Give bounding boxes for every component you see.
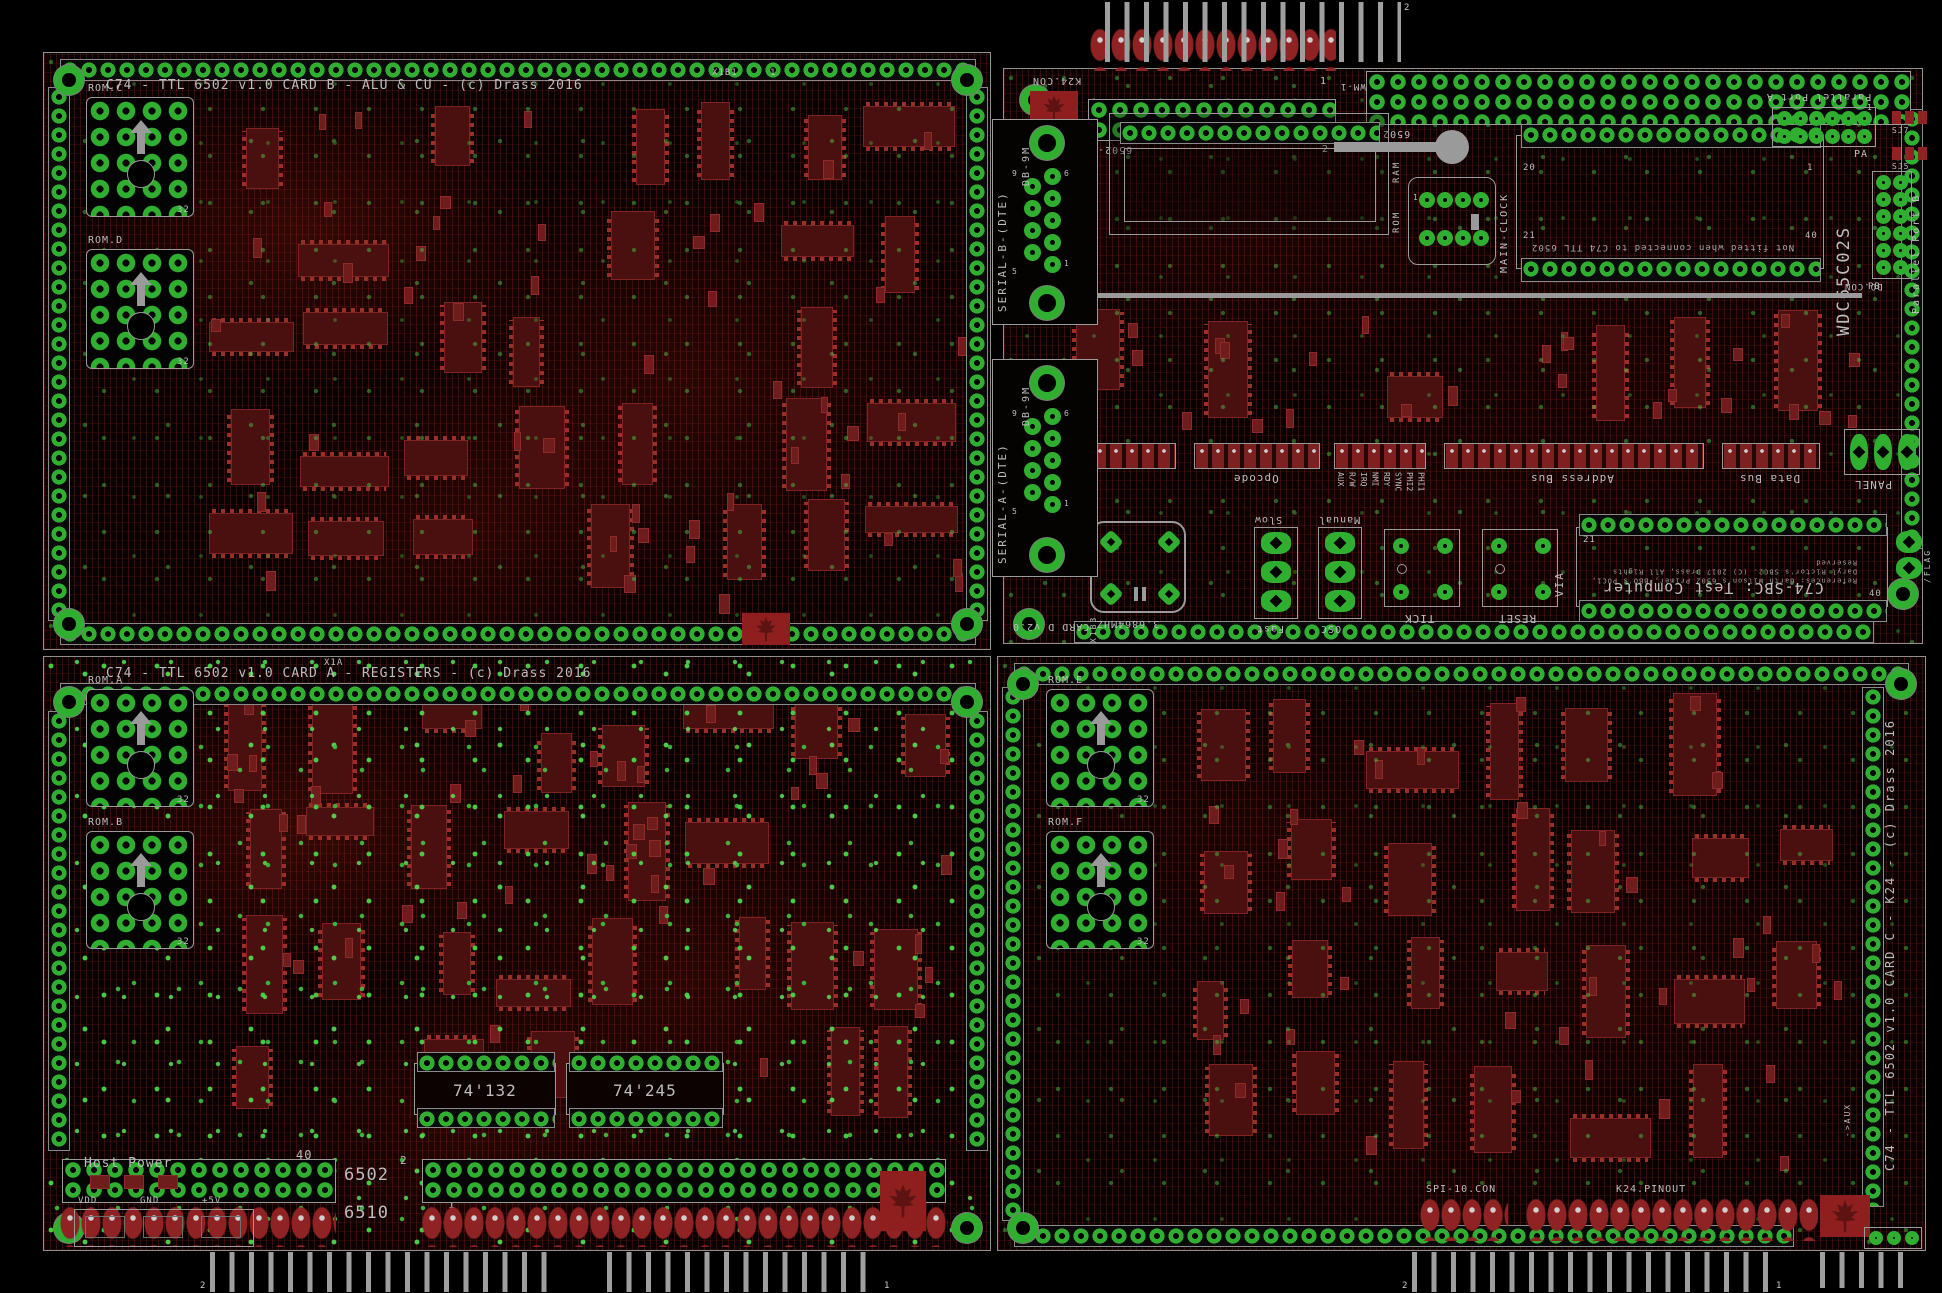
board-card-c: ROM.E32ROM.F32->AUXSPI-10.CONK24.PINOUTC… <box>997 656 1926 1251</box>
ic-chip <box>1674 317 1705 408</box>
button-pad <box>1393 584 1409 600</box>
resistor <box>1563 337 1574 350</box>
resistor <box>1542 345 1550 363</box>
silk-label-vertical: VIA <box>1554 537 1565 597</box>
header-pad <box>1793 111 1808 126</box>
silk-label: 1 <box>770 69 776 78</box>
socket-pin-row <box>1579 600 1887 622</box>
resistor <box>1848 415 1857 428</box>
dip-socket <box>1109 113 1389 235</box>
ic-chip <box>411 805 448 889</box>
power-pin-label: +5V <box>202 1197 221 1206</box>
ic-chip <box>701 102 731 180</box>
socket-pad <box>1473 230 1489 246</box>
ic-chip <box>308 521 385 556</box>
jumper-pad <box>1918 111 1927 124</box>
host-power-label: Host Power <box>84 1157 172 1170</box>
ic-chip <box>504 811 569 849</box>
header-pad <box>1893 243 1908 258</box>
resistor <box>823 160 835 179</box>
jumper-pad <box>1261 532 1291 554</box>
ic-chip <box>1490 703 1519 799</box>
signal-label: AUX <box>1336 472 1344 486</box>
resistor <box>1517 802 1528 820</box>
jumper-wire-end <box>1435 130 1469 164</box>
pcb-layout-screenshot: ROM.C32ROM.D32X1B11C74 - TTL 6502 v1.0 C… <box>0 0 1942 1293</box>
header-pad <box>1893 226 1908 241</box>
ic-chip <box>1586 945 1627 1038</box>
edge-pin-strip-right <box>1862 687 1884 1207</box>
ic-chip <box>874 929 917 1009</box>
socket-pad <box>1455 230 1471 246</box>
resistor <box>319 114 327 130</box>
flag-pad <box>1896 531 1922 553</box>
resistor <box>1766 1065 1775 1084</box>
mounting-hole <box>1886 669 1916 699</box>
via-socket: References: Garth Wilson's 6502 Primer, … <box>1576 527 1888 607</box>
board-card-d: K24.CON6502-B12WM-16502-ARAMROM1MAIN-CLO… <box>1003 68 1923 644</box>
ic-chip <box>541 733 572 793</box>
resistor <box>1276 892 1285 911</box>
button-pad <box>1437 538 1453 554</box>
db9-type-label: DB-9M <box>1022 126 1032 186</box>
header-2x6: 1 <box>1772 107 1876 147</box>
gray-bus-trace <box>1062 293 1862 298</box>
ic-chip <box>685 822 769 864</box>
resistor <box>1747 978 1755 992</box>
header-pad <box>1841 129 1856 144</box>
header-pad <box>1876 226 1891 241</box>
resistor <box>1209 806 1219 825</box>
resistor <box>1511 1090 1522 1103</box>
resistor <box>249 755 258 772</box>
resistor <box>1505 1012 1516 1028</box>
ic-chip <box>519 406 565 489</box>
db9-pad <box>1044 212 1061 229</box>
db9-label: SERIAL-B-(DTE) <box>997 134 1008 312</box>
resistor <box>841 474 850 489</box>
resistor <box>1220 342 1230 360</box>
resistor <box>531 276 540 294</box>
resistor <box>293 960 304 974</box>
connector-pin-comb <box>210 1252 557 1292</box>
resistor <box>1448 386 1458 405</box>
ic-pin-row <box>417 1052 555 1072</box>
resistor <box>941 855 952 875</box>
silk-label: 2 <box>400 1155 408 1166</box>
capacitor <box>124 1175 144 1189</box>
socket-pad <box>1419 230 1435 246</box>
plcc-center-hole <box>127 893 155 921</box>
resistor <box>953 559 962 577</box>
board-card-b: ROM.C32ROM.D32X1B11C74 - TTL 6502 v1.0 C… <box>43 52 991 650</box>
via-title: C74-SBC: Test Computer <box>1603 580 1824 595</box>
db9-pad <box>1024 200 1041 217</box>
resistor <box>853 951 864 965</box>
ic-chip <box>1571 830 1616 913</box>
resistor <box>1286 409 1294 428</box>
ic-chip <box>1673 693 1716 796</box>
plcc-socket: 32 <box>86 97 194 217</box>
silk-label: PANEL <box>1854 479 1892 490</box>
pushbutton <box>1482 529 1558 607</box>
ic-chip <box>602 725 646 787</box>
orientation-arrow-icon <box>137 865 145 887</box>
resistor <box>1721 398 1732 413</box>
power-pin-label: VDD <box>78 1197 97 1206</box>
pin-number: 21 <box>1523 232 1536 241</box>
resistor <box>1849 353 1860 367</box>
mounting-hole <box>54 687 84 717</box>
resistor <box>416 246 426 261</box>
resistor <box>1215 338 1225 353</box>
resistor <box>309 434 319 450</box>
silk-label: SJ5 <box>1892 163 1909 171</box>
header-pad <box>1893 260 1908 275</box>
resistor <box>279 814 288 832</box>
ic-chip <box>795 699 838 759</box>
mounting-hole <box>1008 1213 1038 1243</box>
resistor <box>1362 316 1369 334</box>
db9-pad <box>1024 222 1041 239</box>
silk-label: 1 <box>1867 104 1873 112</box>
resistor <box>708 291 717 307</box>
ic-chip <box>591 504 630 587</box>
header-pad <box>1876 260 1891 275</box>
header-pad <box>1777 111 1792 126</box>
resistor <box>754 203 764 222</box>
silk-label-vertical: ROM <box>1393 193 1402 233</box>
connector-pin-comb <box>1105 2 1401 62</box>
crystal-symbol <box>1142 587 1146 601</box>
crystal-label: 3.6864MHZ <box>1096 618 1159 628</box>
led-array <box>1334 443 1426 469</box>
ic-pin-row <box>569 1052 723 1072</box>
resistor <box>513 775 522 793</box>
ic-part-number: 74'245 <box>613 1083 677 1099</box>
ic-chip <box>404 440 468 476</box>
socket-pad <box>1437 192 1453 208</box>
mounting-hole <box>54 65 84 95</box>
jumper-pad <box>1892 147 1901 160</box>
plcc-pin-count: 32 <box>1137 938 1150 947</box>
mounting-hole <box>952 687 982 717</box>
db9-mount-hole <box>1030 538 1064 572</box>
resistor <box>898 413 907 431</box>
button-pad <box>1535 584 1551 600</box>
jumper-3pin <box>1318 527 1362 619</box>
resistor <box>1733 348 1743 361</box>
button-pad <box>1437 584 1453 600</box>
resistor <box>1780 1156 1788 1171</box>
red-pad-row <box>1420 1197 1508 1241</box>
resistor <box>924 132 932 150</box>
plcc-center-hole <box>127 312 155 340</box>
ic-chip <box>444 302 482 373</box>
led-array-label: Data Bus <box>1739 473 1800 484</box>
crystal-pad <box>1156 529 1181 554</box>
plcc-center-hole <box>1087 751 1115 779</box>
ic-chip <box>727 504 762 580</box>
jumper-pad <box>1905 111 1914 124</box>
resistor <box>355 112 362 130</box>
resistor <box>1342 887 1351 902</box>
ic-chip <box>1291 819 1332 880</box>
crystal-pad <box>1098 581 1123 606</box>
resistor <box>453 303 464 321</box>
resistor <box>617 761 626 781</box>
dual-row-header <box>422 1159 946 1203</box>
resistor <box>490 1025 501 1043</box>
ic-chip <box>1366 751 1459 789</box>
ic-chip <box>306 807 374 836</box>
socket-pad <box>1437 230 1453 246</box>
resistor <box>1340 977 1349 990</box>
power-pin-label: GND <box>140 1197 159 1206</box>
ic-chip <box>1411 937 1440 1008</box>
silk-label: K24.PINOUT <box>1616 1185 1686 1195</box>
ic-chip <box>513 317 540 387</box>
orientation-arrow-icon <box>137 284 145 306</box>
socket-pad <box>1419 192 1435 208</box>
orientation-arrow-icon <box>137 132 145 154</box>
pin-number: 21 <box>1583 536 1596 545</box>
led-array <box>1722 443 1820 469</box>
orientation-arrow-icon <box>1097 865 1105 887</box>
resistor <box>1819 411 1831 425</box>
ic-chip <box>303 312 387 345</box>
resistor <box>633 824 645 839</box>
ic-chip <box>209 322 294 352</box>
button-pad <box>1393 538 1409 554</box>
resistor <box>404 287 414 304</box>
resistor <box>773 381 781 398</box>
ic-chip <box>905 714 946 776</box>
silk-label: WM-1 <box>1340 81 1366 90</box>
orientation-arrow-icon <box>1097 723 1105 745</box>
edge-pin-strip-right <box>966 711 988 1151</box>
resistor <box>1781 314 1790 328</box>
silk-label: SJ7 <box>1892 127 1909 135</box>
resistor <box>925 967 933 983</box>
resistor <box>1516 697 1526 712</box>
connector-pin-comb <box>1412 1252 1771 1292</box>
ic-chip <box>496 979 572 1007</box>
pushbutton <box>1384 529 1460 607</box>
plcc-socket-label: ROM.B <box>88 818 123 828</box>
resistor <box>1375 760 1382 779</box>
header-2x6-vertical <box>1872 171 1912 279</box>
header-pad <box>1777 129 1792 144</box>
resistor <box>1789 404 1799 420</box>
signal-label: RDY <box>1382 472 1390 486</box>
header-pad <box>1841 111 1856 126</box>
panel-connector <box>1844 429 1920 475</box>
resistor <box>686 546 695 563</box>
header-pad <box>1893 175 1908 190</box>
capacitor <box>158 1175 178 1189</box>
silk-label: Parallel Port A <box>1766 91 1871 101</box>
jumper-pad <box>1325 532 1355 554</box>
ic-chip <box>1388 843 1432 916</box>
resistor <box>1561 332 1568 352</box>
mounting-hole <box>1008 669 1038 699</box>
header-pad <box>1876 175 1891 190</box>
silk-label: CARD D v2.0 <box>1012 621 1089 631</box>
resistor <box>297 815 306 833</box>
signal-label: R/W <box>1348 472 1356 486</box>
header-pad <box>1825 129 1840 144</box>
ic-chip <box>1516 808 1550 911</box>
panel-pad <box>1898 434 1916 470</box>
resistor <box>450 784 461 803</box>
ic-chip <box>246 128 279 189</box>
socket-pin-row <box>1120 122 1380 144</box>
resistor <box>1128 323 1138 338</box>
resistor <box>345 938 354 958</box>
resistor <box>727 493 734 511</box>
silk-label: 1 <box>1064 260 1070 268</box>
ic-chip <box>1780 829 1834 861</box>
resistor <box>791 447 799 464</box>
resistor <box>876 287 885 303</box>
jumper-3pin <box>1254 527 1298 619</box>
resistor <box>590 751 597 768</box>
resistor <box>1224 865 1234 879</box>
resistor <box>1599 831 1606 846</box>
pin-number: 20 <box>1523 164 1536 173</box>
jumper-pad <box>1892 111 1901 124</box>
resistor <box>647 817 658 830</box>
resistor <box>1712 772 1722 789</box>
silk-label: 5 <box>1012 508 1018 516</box>
button-label: TICK <box>1404 613 1435 624</box>
resistor <box>227 754 238 770</box>
resistor <box>706 705 717 723</box>
power-slot <box>201 1216 241 1238</box>
silk-label: 6 <box>1064 170 1070 178</box>
ic-chip <box>1209 1064 1254 1136</box>
ic-chip <box>808 499 845 571</box>
silk-label: X1B1 <box>712 69 738 78</box>
resistor <box>543 438 554 453</box>
ic-part-number: 74'132 <box>453 1083 517 1099</box>
led-array-label: Opcode <box>1233 473 1279 484</box>
maple-leaf-icon <box>880 1171 926 1231</box>
signal-label: SYNC <box>1394 472 1402 491</box>
resistor <box>915 934 922 954</box>
mounting-hole <box>952 1213 982 1243</box>
db9-pad <box>1044 190 1061 207</box>
ic-dip-labeled: 74'132 <box>414 1063 556 1115</box>
solder-jumper <box>1890 147 1927 160</box>
ic-chip <box>865 506 958 532</box>
ic-chip <box>611 211 655 279</box>
resistor <box>266 571 276 591</box>
resistor <box>1659 1099 1670 1119</box>
db9-pad <box>1044 408 1061 425</box>
db9-pad <box>1044 474 1061 491</box>
signal-label: NMI <box>1371 472 1379 486</box>
resistor <box>1690 696 1702 711</box>
header-pad <box>1809 129 1824 144</box>
ic-chip <box>786 398 827 491</box>
flag-pad <box>1896 557 1922 579</box>
led-array <box>1444 443 1704 469</box>
resistor <box>1132 350 1144 365</box>
resistor <box>649 840 661 856</box>
silk-label-vertical: X1B3 <box>1090 609 1098 643</box>
resistor <box>1812 944 1820 963</box>
panel-pad <box>1850 434 1868 470</box>
resistor <box>624 575 635 593</box>
silk-label: 6510 <box>344 1205 389 1222</box>
resistor <box>311 786 320 804</box>
pin-number: 40 <box>1869 590 1882 599</box>
button-pad <box>1491 538 1507 554</box>
crystal-pad <box>1156 581 1181 606</box>
resistor <box>644 355 654 373</box>
crystal-glyph <box>1471 214 1479 230</box>
dip40-socket: Not fitted when connected to C74 TTL 650… <box>1516 135 1824 269</box>
resistor <box>1589 977 1597 997</box>
plcc-pin-count: 32 <box>1137 796 1150 805</box>
resistor <box>257 492 265 512</box>
header-pad <box>1893 209 1908 224</box>
button-pad <box>1535 538 1551 554</box>
dimension-mark: 2 <box>200 1282 206 1291</box>
db9-pad <box>1044 430 1061 447</box>
ic-chip <box>636 109 665 185</box>
ic-chip <box>443 932 471 996</box>
socket-pin-row <box>1521 258 1821 282</box>
resistor <box>1417 747 1426 765</box>
button-hole <box>1495 564 1505 574</box>
board-title: C74 - TTL 6502 v1.0 CARD C - K24 - (c) D… <box>1884 721 1896 1171</box>
db9-pad <box>1044 168 1061 185</box>
flag-label: /FLAG <box>1924 531 1932 583</box>
resistor <box>465 720 476 737</box>
resistor <box>940 749 949 764</box>
ic-chip <box>1292 940 1328 999</box>
resistor <box>1286 1029 1295 1044</box>
db9-pad <box>1044 452 1061 469</box>
board-card-a: X1AROM.A32ROM.B3274'13274'24540265021651… <box>43 656 991 1251</box>
db9-pad <box>1044 256 1061 273</box>
ic-chip <box>1197 981 1224 1040</box>
header-pad <box>1793 129 1808 144</box>
silk-label: 1 <box>1320 77 1327 87</box>
db9-type-label: DB-9M <box>1022 366 1032 426</box>
crystal-oscillator <box>1090 521 1186 613</box>
resistor <box>637 766 645 784</box>
ic-chip <box>1273 699 1306 774</box>
connector-pad <box>1905 1231 1919 1245</box>
ic-chip <box>622 403 653 485</box>
db9-pad <box>1024 462 1041 479</box>
resistor <box>587 854 598 874</box>
resistor <box>457 902 467 919</box>
resistor <box>324 202 332 217</box>
resistor <box>1235 1083 1246 1098</box>
clock-socket: 1 <box>1408 177 1496 265</box>
silk-label: SPI-10.CON <box>1426 1185 1496 1195</box>
ic-chip <box>1565 708 1608 781</box>
resistor <box>1659 988 1667 1006</box>
ic-chip <box>885 216 916 293</box>
resistor <box>1182 412 1192 430</box>
plcc-center-hole <box>127 751 155 779</box>
